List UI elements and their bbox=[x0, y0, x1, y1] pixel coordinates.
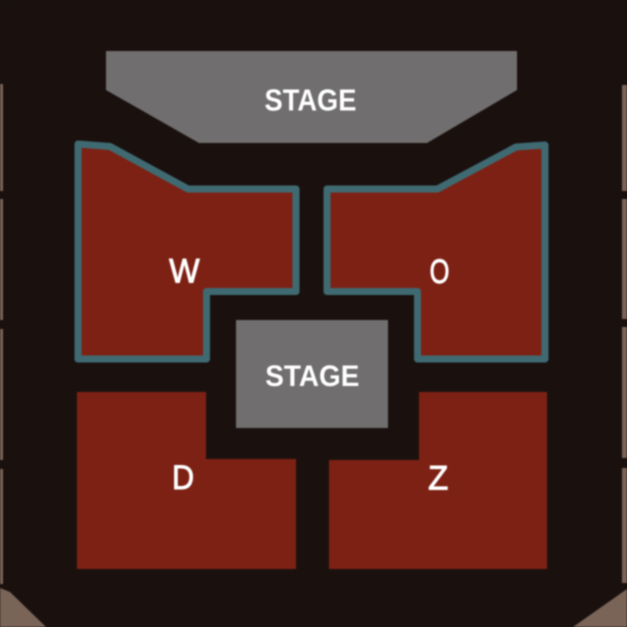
svg-text:STAGE: STAGE bbox=[265, 84, 357, 118]
svg-text:D: D bbox=[172, 458, 194, 496]
svg-text:STAGE: STAGE bbox=[265, 360, 359, 393]
svg-text:O: O bbox=[430, 253, 450, 290]
svg-text:W: W bbox=[169, 253, 200, 291]
svg-text:Z: Z bbox=[428, 460, 448, 498]
